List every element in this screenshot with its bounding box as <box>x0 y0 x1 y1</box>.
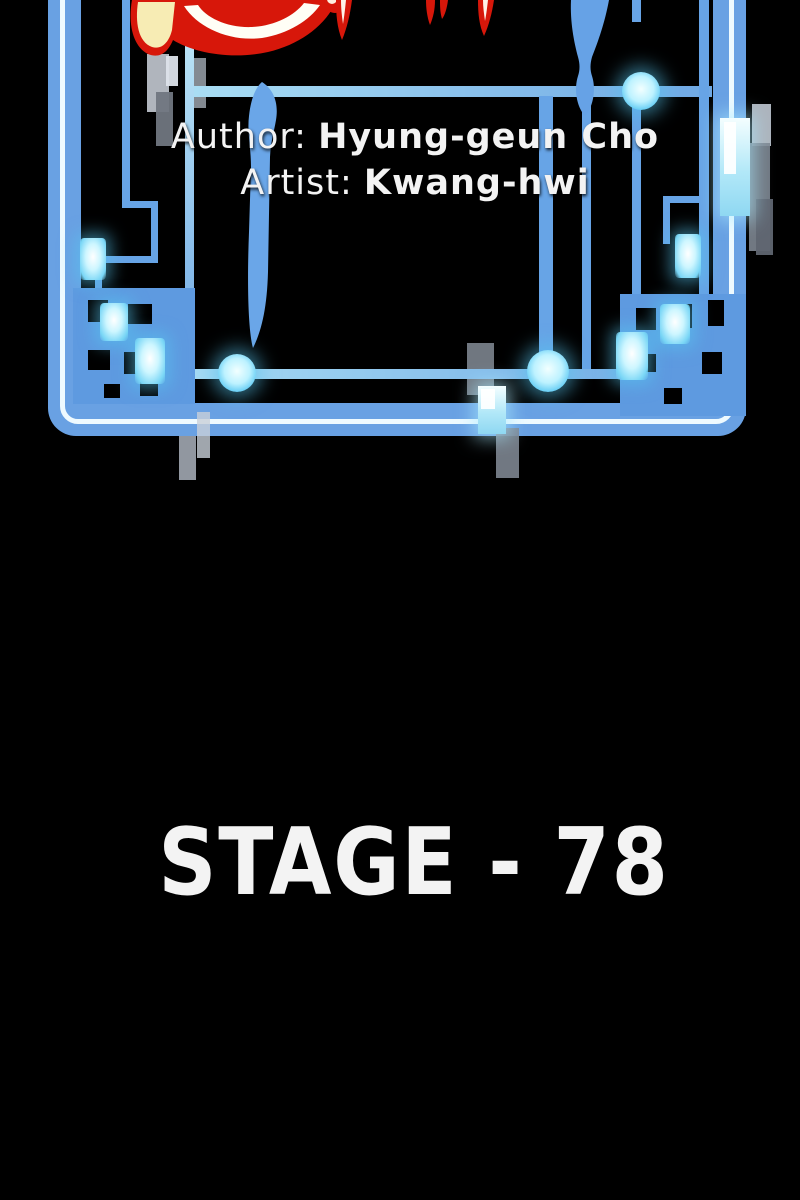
gray-bar <box>197 412 210 458</box>
glow-node-square <box>100 303 128 341</box>
glow-node-square <box>135 338 165 384</box>
circuit-line-vertical <box>632 0 641 22</box>
glow-node-circle <box>218 354 256 392</box>
cluster-hole <box>702 352 722 374</box>
credits: Author: Hyung-geun Cho Artist: Kwang-hwi <box>15 114 800 206</box>
glow-node-square <box>616 332 648 380</box>
cluster-hole <box>104 384 120 398</box>
cluster-hole <box>128 304 152 324</box>
webtoon-title-panel: Author: Hyung-geun Cho Artist: Kwang-hwi… <box>0 0 800 1200</box>
cluster-hole <box>664 388 682 404</box>
glow-node-circle <box>622 72 660 110</box>
author-label: Author: <box>171 117 307 157</box>
stage-title-text: STAGE - 78 <box>158 808 669 916</box>
author-credit: Author: Hyung-geun Cho <box>15 114 800 160</box>
cluster-hole <box>636 308 656 330</box>
cluster-hole <box>140 382 158 396</box>
artist-credit: Artist: Kwang-hwi <box>15 160 800 206</box>
flame-drips <box>330 0 500 42</box>
artist-label: Artist: <box>240 163 353 203</box>
highlight-core <box>481 389 495 409</box>
circuit-step <box>151 201 158 263</box>
gray-bar <box>756 199 773 255</box>
circuit-cluster-left <box>73 288 195 404</box>
highlight-bar <box>478 386 506 434</box>
energy-blade-top <box>563 0 609 128</box>
cluster-hole <box>708 300 724 326</box>
gray-bar <box>496 428 519 478</box>
glow-node-square <box>80 238 106 280</box>
glow-node-square <box>675 234 701 278</box>
cluster-hole <box>88 350 110 370</box>
glow-node-square <box>660 304 690 344</box>
gray-bar <box>179 436 196 480</box>
author-name: Hyung-geun Cho <box>318 117 659 157</box>
stage-title: STAGE - 78 <box>14 808 800 916</box>
flame-logo-fragment <box>122 0 352 65</box>
glow-node-circle <box>527 350 569 392</box>
artist-name: Kwang-hwi <box>364 163 590 203</box>
